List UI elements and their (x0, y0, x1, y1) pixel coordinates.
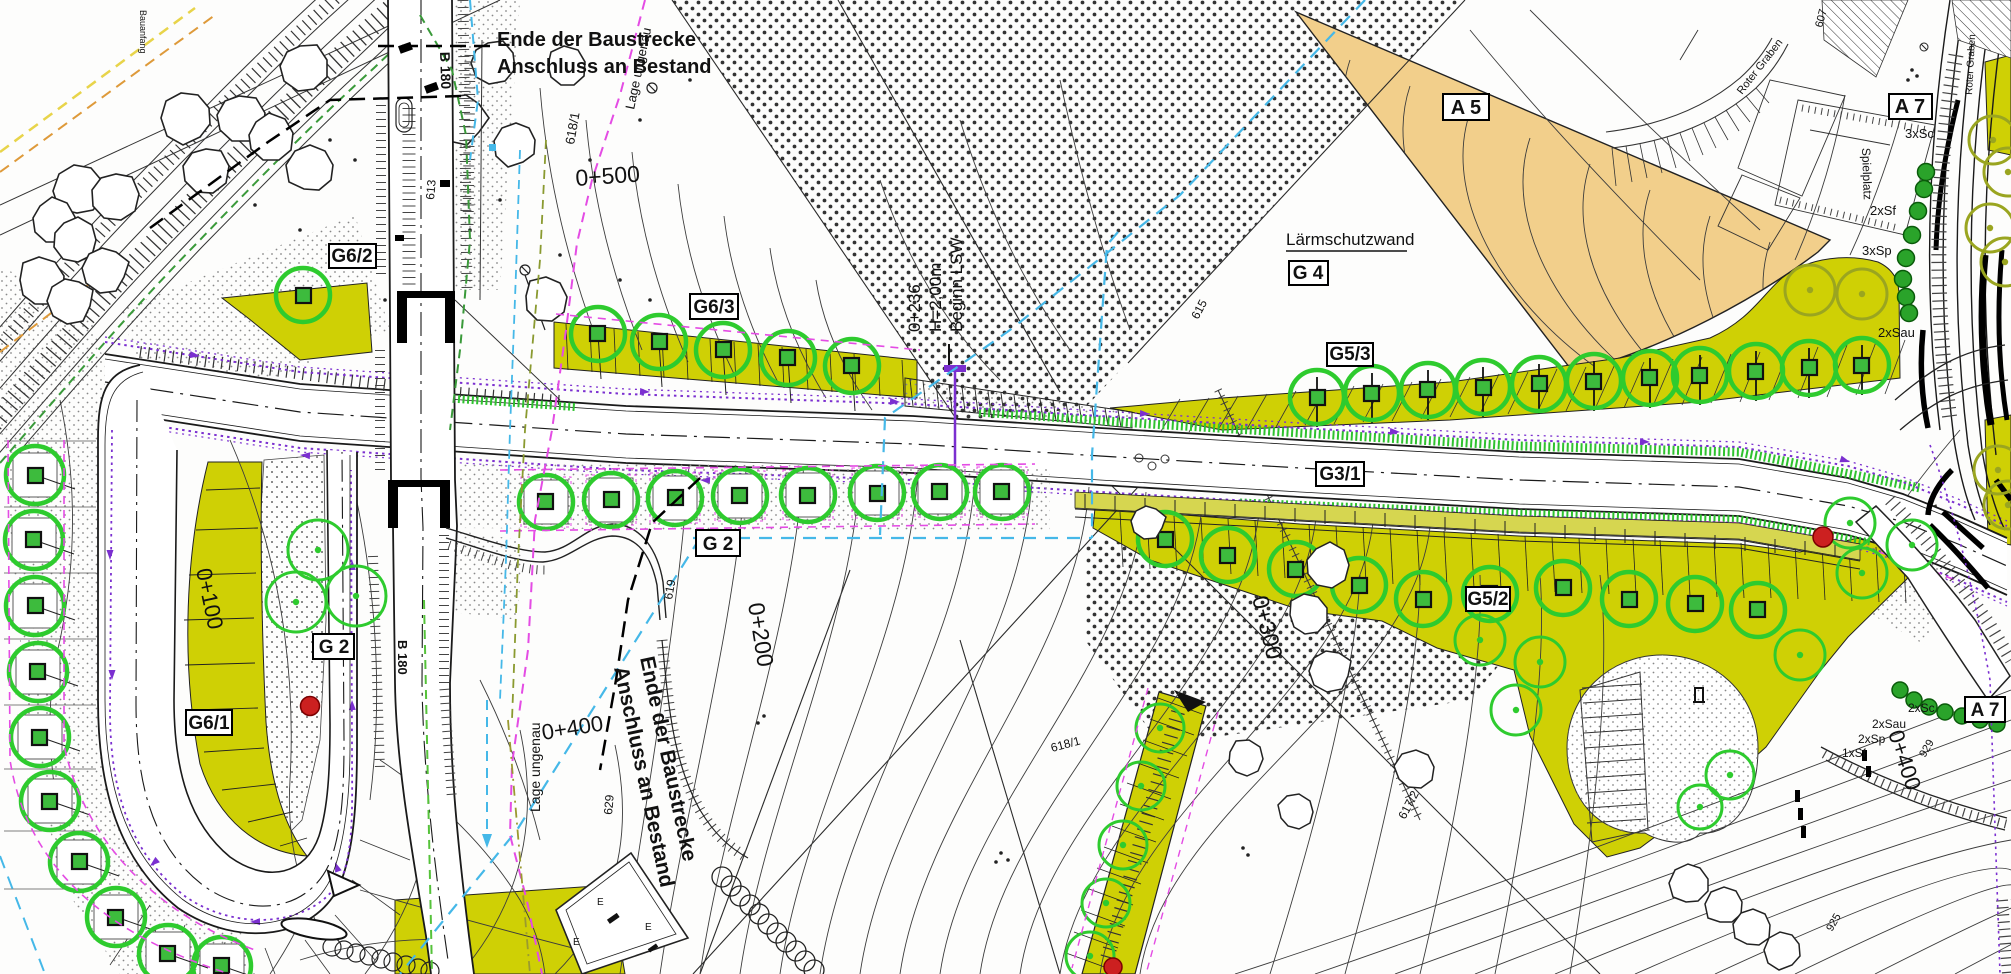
svg-text:Ende der Baustrecke: Ende der Baustrecke (497, 29, 696, 51)
svg-text:A 7: A 7 (1895, 96, 1925, 118)
svg-text:2xSau: 2xSau (1878, 325, 1915, 340)
svg-text:G3/1: G3/1 (1319, 464, 1361, 485)
svg-text:2xSau: 2xSau (1872, 717, 1906, 731)
svg-text:G6/1: G6/1 (188, 713, 230, 734)
svg-text:A 7: A 7 (1971, 700, 2000, 721)
svg-text:G5/3: G5/3 (1329, 344, 1370, 365)
svg-text:H=2,00m: H=2,00m (926, 263, 945, 332)
svg-text:2xSf: 2xSf (1870, 203, 1896, 218)
svg-text:E: E (645, 922, 652, 933)
svg-text:B 180: B 180 (395, 640, 410, 675)
svg-text:0+500: 0+500 (575, 161, 641, 191)
svg-text:E: E (573, 937, 580, 948)
svg-text:Bauanfang: Bauanfang (138, 10, 148, 54)
svg-text:2xSp: 2xSp (1858, 732, 1886, 746)
svg-text:Spielplatz: Spielplatz (1859, 148, 1875, 200)
svg-text:G 2: G 2 (319, 637, 350, 658)
svg-text:A 5: A 5 (1451, 97, 1481, 119)
svg-text:G6/3: G6/3 (693, 297, 734, 318)
svg-text:629: 629 (601, 794, 617, 815)
svg-text:Lärmschutzwand: Lärmschutzwand (1286, 230, 1415, 249)
svg-text:Anschluss an Bestand: Anschluss an Bestand (497, 56, 712, 78)
svg-text:Beginn LSW: Beginn LSW (947, 238, 966, 333)
svg-text:B 180: B 180 (437, 52, 454, 90)
svg-text:3xSc: 3xSc (1905, 126, 1934, 141)
svg-text:G5/2: G5/2 (1467, 589, 1508, 610)
svg-text:3xSp: 3xSp (1862, 243, 1892, 258)
svg-text:G 4: G 4 (1293, 263, 1324, 284)
svg-text:0+236: 0+236 (905, 284, 924, 332)
svg-text:2xSc: 2xSc (1908, 701, 1935, 715)
svg-text:Lage ungenau: Lage ungenau (527, 722, 543, 812)
svg-text:G6/2: G6/2 (331, 246, 372, 267)
svg-text:G 2: G 2 (703, 534, 734, 555)
svg-text:613: 613 (423, 179, 439, 200)
svg-text:E: E (597, 897, 604, 908)
svg-text:1xSf: 1xSf (1842, 746, 1867, 760)
